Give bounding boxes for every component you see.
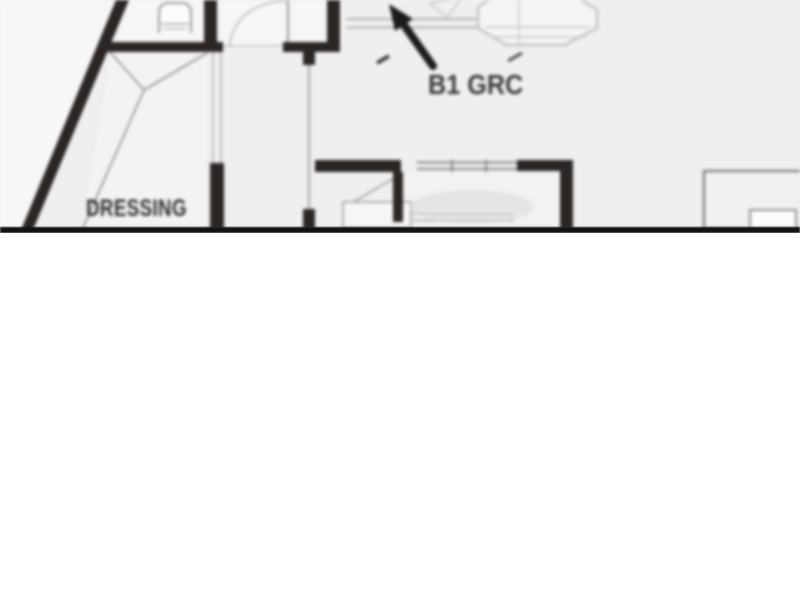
- floor-plan-blurred-layer: DRESSING B1 GRC: [0, 0, 800, 228]
- floor-plan-section: DRESSING B1 GRC: [0, 0, 800, 228]
- blank-area: [0, 233, 800, 600]
- table-octagon: [478, 0, 597, 45]
- annotation-label-b1-grc: B1 GRC: [428, 71, 523, 99]
- floor-plan-drawing: [0, 0, 800, 228]
- screenshot-root: DRESSING B1 GRC: [0, 0, 800, 600]
- counter-inner-box: [750, 210, 796, 228]
- soft-shadow-blob: [410, 190, 534, 224]
- room-label-dressing: DRESSING: [86, 197, 187, 221]
